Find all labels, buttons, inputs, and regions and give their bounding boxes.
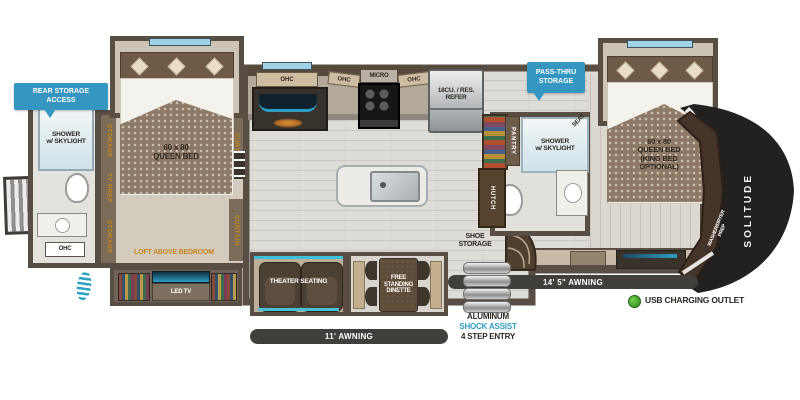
brand-logo-text: SOLITUDE bbox=[743, 173, 754, 248]
awning-rear: 11' AWNING bbox=[250, 329, 448, 344]
dinette-label: FREE STANDING DINETTE bbox=[384, 275, 413, 295]
entry-steps-icon bbox=[463, 262, 511, 312]
banner-tail bbox=[44, 109, 56, 118]
entry-shock-assist-label: SHOCK ASSIST bbox=[430, 322, 546, 332]
usb-charging-outlet-label: USB CHARGING OUTLET bbox=[645, 296, 765, 306]
entry-steps-label: 4 STEP ENTRY bbox=[430, 332, 546, 342]
brand-logo: SOLITUDE bbox=[738, 166, 758, 254]
rear-storage-access-banner: REAR STORAGE ACCESS bbox=[14, 83, 108, 110]
dinette-chair-icon bbox=[418, 261, 430, 280]
dinette-slide: FREE STANDING DINETTE bbox=[347, 252, 448, 316]
dinette-bench-icon bbox=[430, 261, 442, 309]
recliner-icon bbox=[259, 262, 301, 312]
recliner-icon bbox=[301, 262, 343, 312]
theater-seating-label: THEATER SEATING bbox=[254, 278, 343, 285]
floorplan-canvas: REAR STORAGE ACCESS SHOWER w/ SKYLIGHT O… bbox=[0, 0, 800, 400]
awning-rear-label: 11' AWNING bbox=[325, 332, 373, 341]
dinette-table-icon: FREE STANDING DINETTE bbox=[379, 258, 418, 312]
entry-material-label: ALUMINUM bbox=[430, 312, 546, 322]
pass-thru-storage-banner: PASS-THRU STORAGE bbox=[527, 62, 585, 93]
dinette-chair-icon bbox=[418, 287, 430, 306]
usb-outlet-dot bbox=[628, 295, 641, 308]
theater-seating-slide: THEATER SEATING bbox=[250, 252, 347, 316]
dinette-chair-icon bbox=[365, 261, 377, 280]
dinette-bench-icon bbox=[353, 261, 365, 309]
banner-tail bbox=[533, 92, 545, 101]
awning-main-label: 14' 5" AWNING bbox=[543, 278, 603, 287]
dinette-chair-icon bbox=[365, 287, 377, 306]
